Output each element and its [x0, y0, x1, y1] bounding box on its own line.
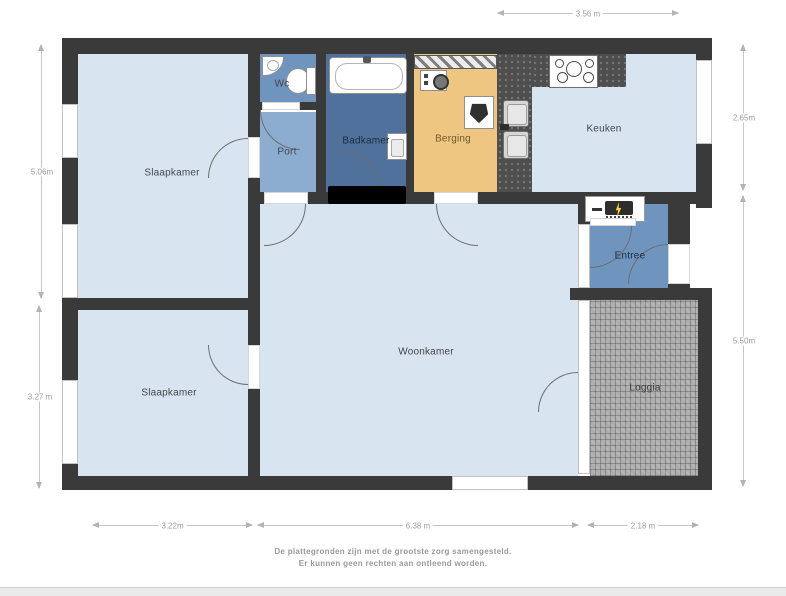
wall-segment	[78, 298, 248, 310]
room-label-slaapkamer-2: Slaapkamer	[141, 388, 196, 399]
wall-segment	[62, 38, 712, 54]
dimension-right-upper: 2.65m	[743, 45, 744, 190]
window-entree	[578, 224, 590, 288]
door-opening	[264, 192, 308, 204]
dimension-label: 2.18 m	[628, 522, 658, 531]
dimension-bottom-left: 3.22m	[93, 525, 252, 526]
room-label-berging: Berging	[435, 134, 471, 145]
bathtub-icon	[329, 57, 407, 94]
window-loggia	[578, 300, 590, 474]
dimension-left-lower: 3.27 m	[39, 306, 40, 488]
stove-icon	[549, 55, 598, 88]
window	[62, 380, 78, 464]
dimension-label: 5.06m	[28, 167, 56, 176]
wall-segment	[668, 202, 690, 244]
dimension-bottom-right: 2.18 m	[588, 525, 698, 526]
window	[452, 476, 528, 490]
wall-segment	[248, 54, 260, 476]
wall-segment	[406, 54, 414, 204]
room-label-keuken: Keuken	[586, 124, 621, 135]
dimension-bottom-middle: 6.38 m	[258, 525, 578, 526]
bathroom-sink-icon	[387, 133, 407, 160]
dimension-top: 3.56 m	[498, 13, 678, 14]
dimension-left-upper: 5.06m	[41, 45, 42, 298]
window	[62, 224, 78, 298]
hatch-duct	[414, 55, 497, 69]
dimension-label: 3.27 m	[25, 393, 55, 402]
disclaimer-line-2: Er kunnen geen rechten aan ontleend word…	[0, 558, 786, 570]
room-label-badkamer: Badkamer	[342, 136, 389, 147]
room-label-slaapkamer-1: Slaapkamer	[144, 168, 199, 179]
wall-segment	[62, 476, 712, 490]
door-opening	[262, 102, 300, 110]
double-sink-icon	[503, 131, 529, 159]
room-woonkamer	[260, 204, 578, 476]
door-opening	[590, 218, 636, 226]
dimension-label: 5.50m	[730, 337, 758, 346]
room-label-loggia: Loggia	[629, 383, 660, 394]
wall-segment	[698, 288, 712, 490]
dimension-label: 3.22m	[158, 522, 186, 531]
toilet-tank-icon	[306, 67, 316, 95]
room-label-woonkamer: Woonkamer	[398, 347, 454, 358]
disclaimer-text: De plattegronden zijn met de grootste zo…	[0, 546, 786, 570]
room-label-wc: Wc	[275, 79, 290, 90]
door-opening	[248, 137, 260, 178]
window	[696, 60, 712, 144]
door-opening	[434, 192, 478, 204]
threshold-block	[328, 186, 406, 204]
dimension-right-lower: 5.50m	[743, 196, 744, 486]
door-opening	[248, 345, 260, 389]
dimension-label: 2.65m	[730, 113, 758, 122]
dimension-label: 6.38 m	[403, 522, 433, 531]
double-sink-icon	[503, 100, 529, 127]
boiler-icon	[464, 96, 494, 129]
room-label-entree: Entree	[615, 251, 646, 262]
dimension-label: 3.56 m	[573, 10, 603, 19]
wall-segment	[570, 288, 712, 300]
window	[62, 104, 78, 158]
floorplan-canvas: Slaapkamer Slaapkamer Wc Port Badkamer B…	[0, 0, 786, 596]
disclaimer-line-1: De plattegronden zijn met de grootste zo…	[0, 546, 786, 558]
washing-machine-icon	[420, 70, 447, 91]
faucet-icon	[500, 124, 509, 130]
room-label-port: Port	[277, 147, 296, 158]
door-opening	[668, 244, 690, 284]
wall-segment	[316, 54, 326, 204]
bottom-ui-bar	[0, 587, 786, 596]
